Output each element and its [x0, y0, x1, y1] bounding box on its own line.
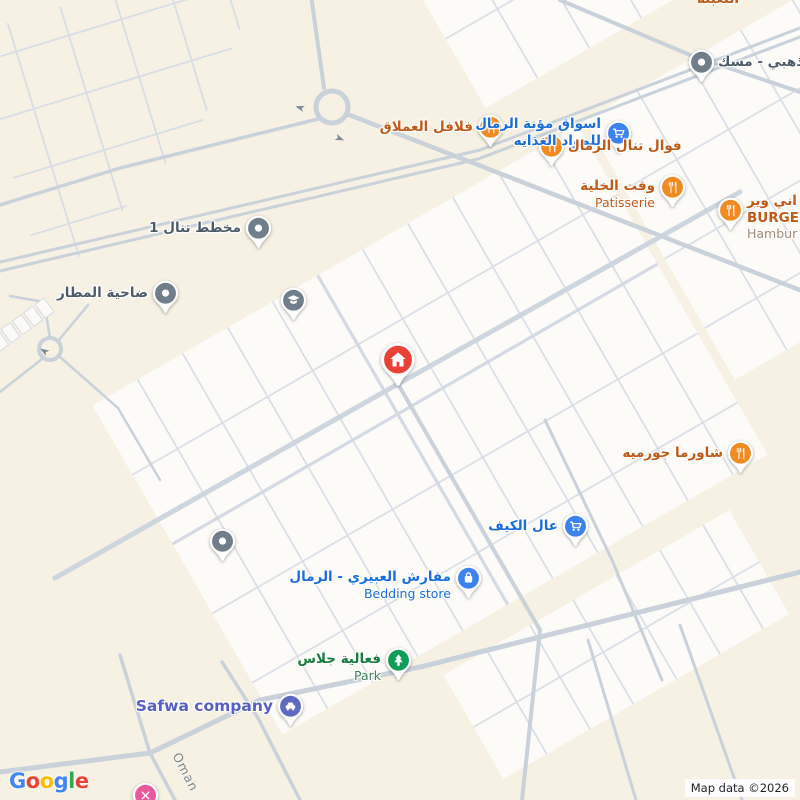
dhahabi-misk-pin[interactable] — [688, 49, 715, 83]
faaliyat-jalas-park-name: فعالية جلاس — [297, 651, 381, 668]
burgerani-weir-label[interactable]: اني ويرBURGEHambur — [747, 193, 799, 243]
dot-icon — [209, 528, 236, 562]
google-logo-letter: G — [9, 769, 26, 793]
faaliyat-jalas-park-sub: Park — [297, 668, 381, 685]
burgerani-weir-name2: BURGE — [747, 210, 799, 227]
dot-icon — [152, 280, 179, 314]
burgerani-weir-sub: Hambur — [747, 226, 799, 243]
dot-icon — [688, 49, 715, 83]
school-icon — [280, 287, 307, 321]
mukhattat-tanal-1-pin[interactable] — [245, 215, 272, 249]
google-logo-letter: g — [54, 769, 69, 793]
safwa-company-name: Safwa company — [136, 698, 273, 715]
waqt-alkhaliya-label[interactable]: وقت الخليةPatisserie — [580, 178, 655, 211]
google-logo[interactable]: Google — [9, 769, 89, 793]
aal-alkayf-pin[interactable] — [562, 513, 589, 547]
food-icon — [659, 174, 686, 208]
aswaq-muna-alrimal-name: اسواق مؤنة الرمال — [475, 116, 601, 133]
safwa-company-label[interactable]: Safwa company — [136, 698, 273, 715]
mafarish-alobairi-pin[interactable] — [455, 565, 482, 599]
home-marker-pin[interactable] — [380, 342, 416, 388]
mukhattat-tanal-1-label[interactable]: مخطط تنال 1 — [149, 220, 241, 237]
beauty-salon-pin[interactable] — [132, 782, 159, 800]
google-logo-letter: l — [68, 769, 75, 793]
top-edge-cut-label[interactable]: التعبئة — [697, 0, 739, 7]
map-attribution: Map data ©2026 — [685, 779, 795, 797]
poi-layer: اسواق مؤنة الرمالللمواد الغذايهذهبي - مس… — [0, 0, 800, 800]
dhahabi-misk-label[interactable]: ذهبي - مسك — [718, 54, 800, 71]
mafarish-alobairi-label[interactable]: مفارش العبيري - الرمالBedding store — [289, 569, 451, 602]
google-logo-letter: o — [26, 769, 40, 793]
bag-icon — [455, 565, 482, 599]
falafel-alemlaq-name: فلافل العملاق — [380, 119, 473, 136]
food-icon — [717, 197, 744, 231]
faaliyat-jalas-park-pin[interactable] — [385, 647, 412, 681]
aal-alkayf-name: عال الكيف — [488, 518, 558, 535]
dahiyat-almatar-label[interactable]: ضاحية المطار — [57, 285, 148, 302]
map-root[interactable]: اسواق مؤنة الرمالللمواد الغذايهذهبي - مس… — [0, 0, 800, 800]
school-poi-pin[interactable] — [280, 287, 307, 321]
fuwal-tanal-alrimal-name: فوال تنال الرمال — [568, 138, 682, 155]
mafarish-alobairi-name: مفارش العبيري - الرمال — [289, 569, 451, 586]
shawarma-gourmet-label[interactable]: شاورما جورميه — [622, 445, 723, 462]
beauty-icon — [132, 782, 159, 800]
dot-icon — [245, 215, 272, 249]
mafarish-alobairi-sub: Bedding store — [289, 586, 451, 603]
faaliyat-jalas-park-label[interactable]: فعالية جلاسPark — [297, 651, 381, 684]
mukhattat-tanal-1-name: مخطط تنال 1 — [149, 220, 241, 237]
dhahabi-misk-name: ذهبي - مسك — [718, 54, 800, 71]
burgerani-weir-name: اني وير — [747, 193, 799, 210]
food-icon — [727, 440, 754, 474]
home-icon — [380, 342, 416, 388]
dahiyat-almatar-name: ضاحية المطار — [57, 285, 148, 302]
safwa-company-pin[interactable] — [277, 693, 304, 727]
car-icon — [277, 693, 304, 727]
shawarma-gourmet-name: شاورما جورميه — [622, 445, 723, 462]
falafel-alemlaq-label[interactable]: فلافل العملاق — [380, 119, 473, 136]
waqt-alkhaliya-pin[interactable] — [659, 174, 686, 208]
shawarma-gourmet-pin[interactable] — [727, 440, 754, 474]
google-logo-letter: e — [75, 769, 89, 793]
fuwal-tanal-alrimal-label[interactable]: فوال تنال الرمال — [568, 138, 682, 155]
cart-icon — [562, 513, 589, 547]
waqt-alkhaliya-name: وقت الخلية — [580, 178, 655, 195]
burgerani-weir-pin[interactable] — [717, 197, 744, 231]
dahiyat-almatar-pin[interactable] — [152, 280, 179, 314]
tree-icon — [385, 647, 412, 681]
gray-dot-poi-pin[interactable] — [209, 528, 236, 562]
google-logo-letter: o — [40, 769, 54, 793]
aal-alkayf-label[interactable]: عال الكيف — [488, 518, 558, 535]
waqt-alkhaliya-sub: Patisserie — [580, 195, 655, 212]
